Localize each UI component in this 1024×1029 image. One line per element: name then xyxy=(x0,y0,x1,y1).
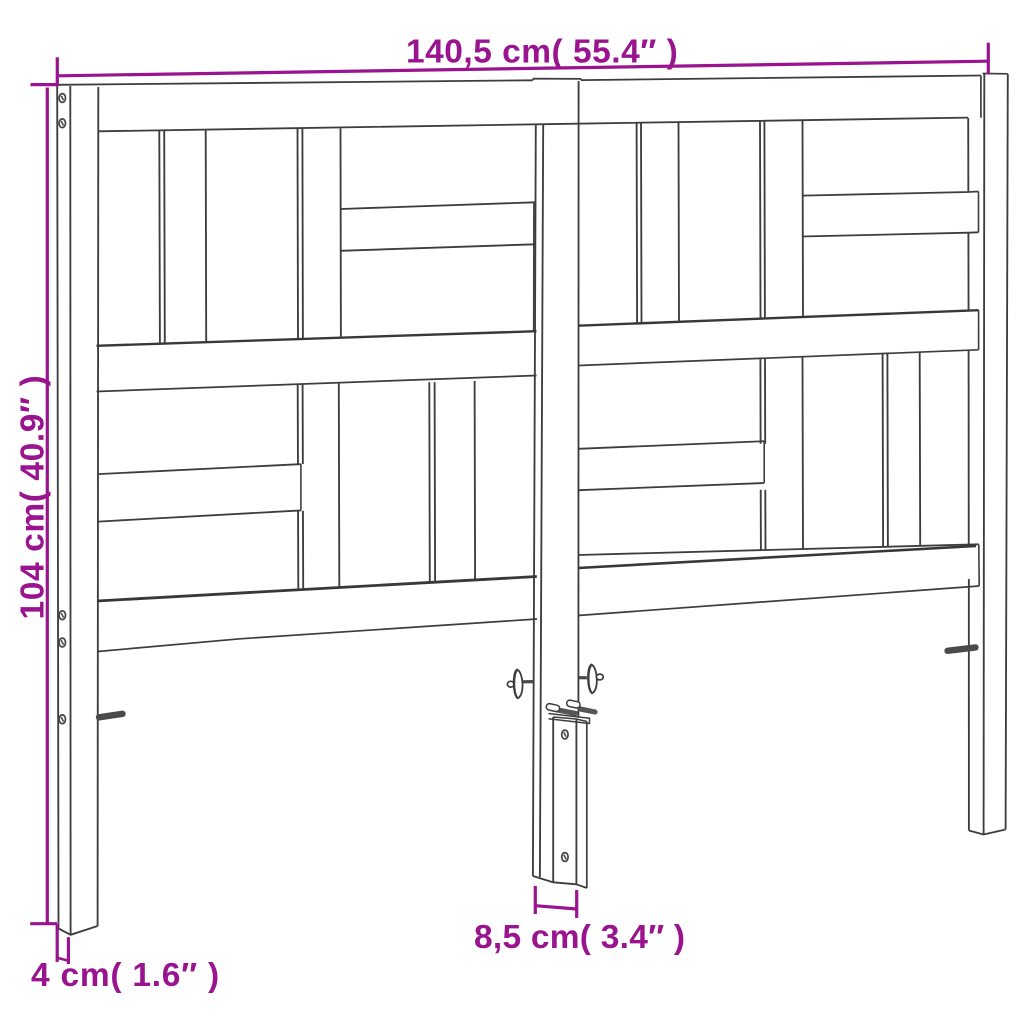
svg-text:8,5 cm( 3.4″ ): 8,5 cm( 3.4″ ) xyxy=(474,919,685,956)
svg-text:140,5 cm( 55.4″ ): 140,5 cm( 55.4″ ) xyxy=(406,34,678,71)
svg-text:104 cm( 40.9″ ): 104 cm( 40.9″ ) xyxy=(14,375,51,620)
svg-text:4 cm( 1.6″ ): 4 cm( 1.6″ ) xyxy=(31,957,220,994)
